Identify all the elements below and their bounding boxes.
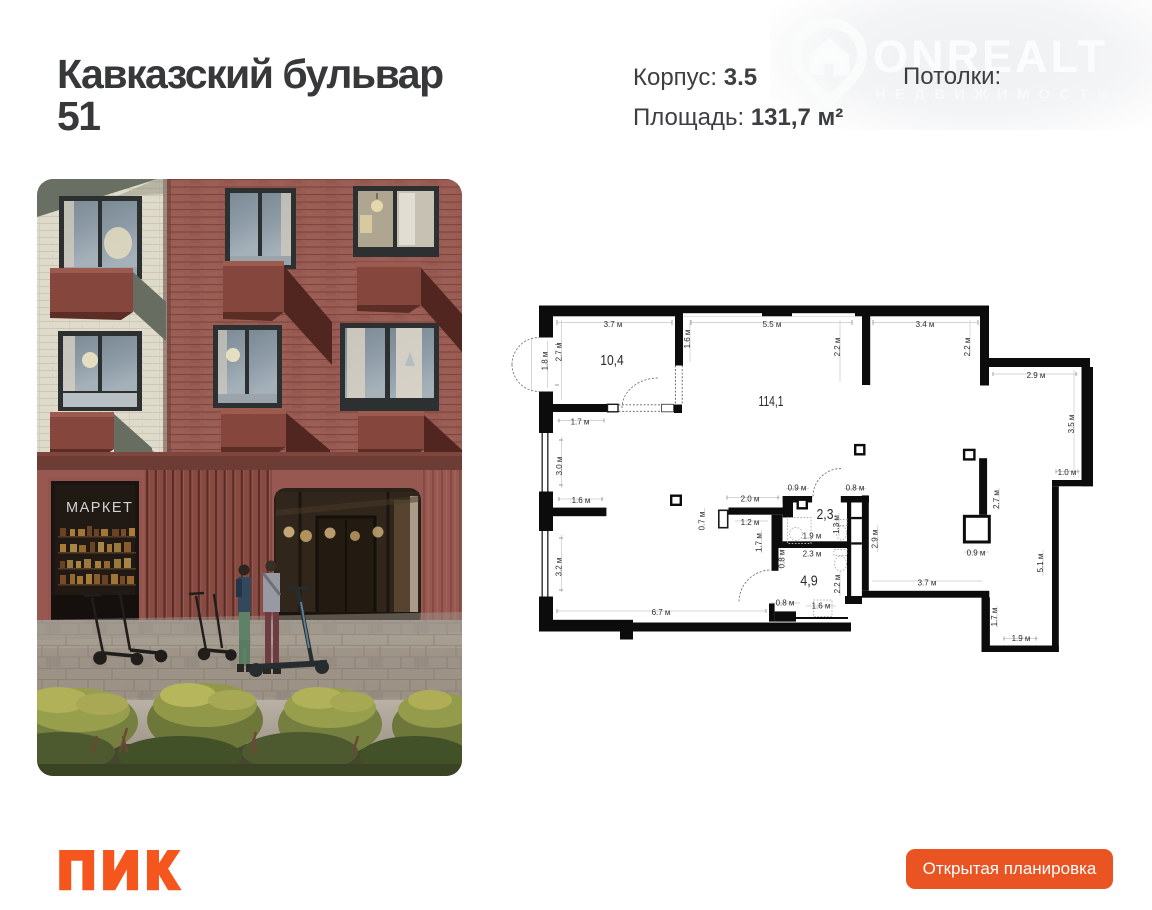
svg-text:1.0 м: 1.0 м <box>1058 468 1077 477</box>
svg-text:1.7 м: 1.7 м <box>990 608 999 627</box>
svg-text:3.5 м: 3.5 м <box>1067 415 1076 434</box>
svg-text:0.8 м: 0.8 м <box>846 484 865 493</box>
svg-text:2.2 м: 2.2 м <box>963 338 972 357</box>
svg-text:4,9: 4,9 <box>800 573 818 590</box>
svg-text:5.1 м: 5.1 м <box>1036 554 1045 573</box>
svg-text:1.9 м: 1.9 м <box>1012 634 1031 643</box>
svg-text:0.8 м: 0.8 м <box>778 550 787 569</box>
svg-text:1.2 м: 1.2 м <box>741 518 760 527</box>
svg-text:0.7 м: 0.7 м <box>698 512 707 531</box>
svg-text:2.0 м: 2.0 м <box>741 495 760 504</box>
svg-text:2.2 м: 2.2 м <box>833 575 842 594</box>
svg-text:1.8 м: 1.8 м <box>541 352 550 371</box>
svg-text:2.9 м: 2.9 м <box>1027 371 1046 380</box>
svg-text:3.7 м: 3.7 м <box>604 320 623 329</box>
svg-text:0.8 м: 0.8 м <box>776 599 795 608</box>
svg-text:1.7 м: 1.7 м <box>571 418 590 427</box>
svg-text:1.6 м: 1.6 м <box>683 330 692 349</box>
svg-text:3.7 м: 3.7 м <box>918 579 937 588</box>
svg-text:3.0 м: 3.0 м <box>555 457 564 476</box>
svg-text:114,1: 114,1 <box>759 393 784 410</box>
svg-text:2.9 м: 2.9 м <box>871 530 880 549</box>
svg-text:1.3 м: 1.3 м <box>832 515 841 534</box>
svg-text:0.9 м: 0.9 м <box>788 484 807 493</box>
svg-text:3.2 м: 3.2 м <box>554 558 563 577</box>
svg-text:6.7 м: 6.7 м <box>652 608 671 617</box>
svg-text:1.6 м: 1.6 м <box>572 496 591 505</box>
svg-text:2.2 м: 2.2 м <box>833 338 842 357</box>
svg-text:10,4: 10,4 <box>600 352 624 369</box>
svg-text:2.3 м: 2.3 м <box>803 550 822 559</box>
svg-text:5.5 м: 5.5 м <box>763 320 782 329</box>
svg-text:2.7 м: 2.7 м <box>555 343 564 362</box>
svg-text:1.6 м: 1.6 м <box>812 602 831 611</box>
svg-text:МАРКЕТ: МАРКЕТ <box>66 500 133 516</box>
svg-text:ПИК: ПИК <box>58 842 184 896</box>
svg-text:0.9 м: 0.9 м <box>967 549 986 558</box>
svg-text:1.9 м: 1.9 м <box>803 532 822 541</box>
svg-text:1.7 м: 1.7 м <box>755 533 764 552</box>
svg-text:3.4 м: 3.4 м <box>916 320 935 329</box>
svg-text:2,3: 2,3 <box>817 506 834 523</box>
svg-text:2.7 м: 2.7 м <box>992 490 1001 509</box>
